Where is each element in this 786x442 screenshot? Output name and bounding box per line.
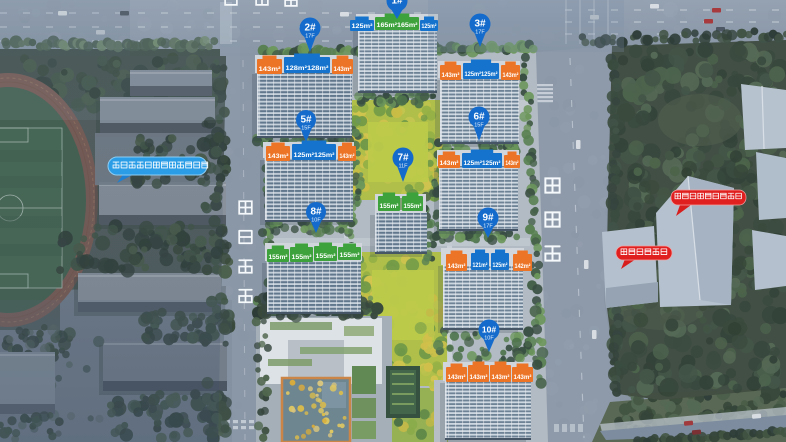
svg-text:17F: 17F bbox=[305, 34, 315, 40]
svg-text:143m²: 143m² bbox=[514, 374, 533, 381]
svg-text:125m²: 125m² bbox=[352, 23, 374, 30]
svg-text:143m²: 143m² bbox=[259, 66, 282, 73]
svg-text:142m²: 142m² bbox=[515, 263, 532, 270]
svg-text:10#: 10# bbox=[482, 325, 496, 335]
svg-text:10F: 10F bbox=[311, 218, 321, 224]
svg-text:155m²: 155m² bbox=[404, 203, 423, 210]
svg-text:11F: 11F bbox=[398, 164, 408, 170]
svg-text:155m²: 155m² bbox=[316, 253, 337, 260]
svg-text:17F: 17F bbox=[475, 30, 485, 36]
svg-text:143m²: 143m² bbox=[503, 72, 520, 79]
svg-text:155m²: 155m² bbox=[380, 203, 400, 210]
svg-text:125m²: 125m² bbox=[493, 262, 509, 269]
svg-text:143m²: 143m² bbox=[492, 374, 511, 381]
svg-text:125m²125m²: 125m²125m² bbox=[465, 71, 499, 78]
svg-text:17F: 17F bbox=[483, 224, 493, 230]
svg-text:3#: 3# bbox=[474, 19, 486, 30]
svg-text:125m²125m²: 125m²125m² bbox=[294, 152, 336, 159]
svg-text:165m²165m²: 165m²165m² bbox=[377, 22, 419, 29]
svg-text:128m²128m²: 128m²128m² bbox=[286, 65, 330, 72]
svg-text:1#: 1# bbox=[391, 0, 403, 7]
svg-text:121m²: 121m² bbox=[473, 262, 489, 269]
svg-text:143m²: 143m² bbox=[448, 263, 467, 270]
svg-text:15F: 15F bbox=[474, 123, 484, 129]
svg-text:143m²: 143m² bbox=[340, 153, 356, 160]
svg-text:125m²: 125m² bbox=[422, 23, 438, 30]
svg-text:143m²: 143m² bbox=[470, 374, 489, 381]
svg-text:143m²: 143m² bbox=[334, 66, 353, 73]
svg-text:9#: 9# bbox=[482, 213, 494, 224]
svg-text:143m²: 143m² bbox=[442, 72, 461, 79]
svg-text:8#: 8# bbox=[310, 207, 322, 218]
svg-text:143m²: 143m² bbox=[506, 160, 520, 167]
svg-text:155m²: 155m² bbox=[340, 252, 361, 259]
svg-text:5#: 5# bbox=[300, 115, 312, 126]
svg-text:143m²: 143m² bbox=[440, 160, 460, 167]
svg-text:2#: 2# bbox=[304, 23, 316, 34]
svg-text:143m²: 143m² bbox=[448, 374, 467, 381]
svg-text:155m²: 155m² bbox=[269, 254, 289, 261]
svg-text:125m²125m²: 125m²125m² bbox=[464, 160, 502, 167]
svg-text:10F: 10F bbox=[484, 336, 494, 342]
svg-text:143m²: 143m² bbox=[268, 153, 290, 160]
svg-text:155m²: 155m² bbox=[292, 254, 313, 261]
svg-text:15F: 15F bbox=[301, 126, 311, 132]
svg-text:7#: 7# bbox=[397, 153, 409, 164]
svg-text:6#: 6# bbox=[473, 112, 485, 123]
